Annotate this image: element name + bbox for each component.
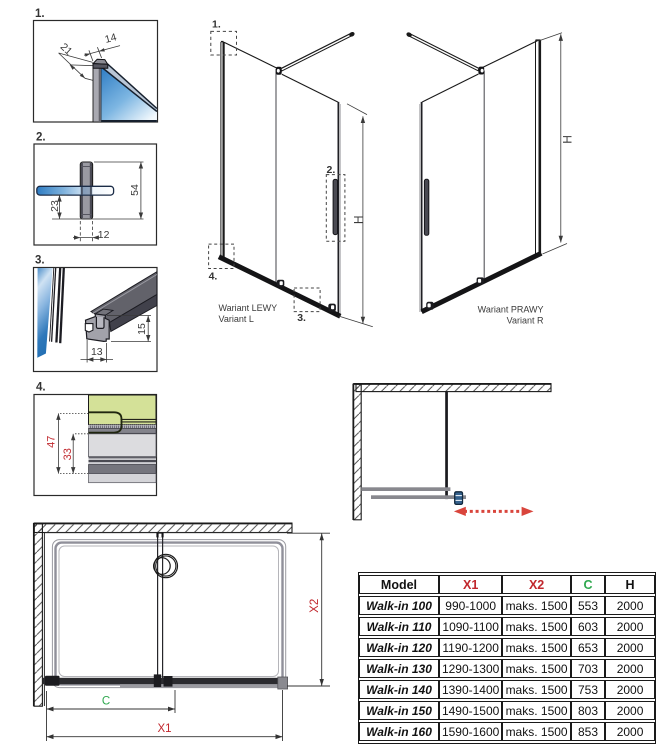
svg-text:2.: 2. [327, 164, 336, 176]
svg-text:X1: X1 [157, 723, 171, 735]
svg-text:23: 23 [49, 200, 61, 212]
svg-text:3.: 3. [297, 312, 306, 324]
svg-text:13: 13 [91, 346, 103, 358]
svg-text:54: 54 [129, 184, 141, 196]
svg-text:1.: 1. [212, 19, 221, 31]
svg-text:4.: 4. [209, 271, 218, 283]
svg-text:47: 47 [45, 436, 57, 448]
svg-text:1.: 1. [35, 8, 45, 20]
svg-text:33: 33 [62, 448, 74, 460]
svg-text:Variant L: Variant L [219, 314, 254, 324]
svg-text:H: H [351, 215, 365, 224]
svg-text:H: H [561, 135, 575, 144]
svg-text:15: 15 [136, 323, 148, 335]
svg-text:C: C [102, 696, 110, 708]
svg-text:2.: 2. [36, 132, 46, 144]
svg-text:Wariant PRAWY: Wariant PRAWY [478, 305, 544, 315]
svg-text:Wariant LEWY: Wariant LEWY [219, 303, 278, 313]
svg-text:4.: 4. [36, 382, 46, 394]
svg-text:X2: X2 [309, 599, 321, 613]
svg-text:3.: 3. [35, 255, 45, 267]
svg-text:Variant R: Variant R [507, 316, 544, 326]
svg-text:12: 12 [98, 229, 110, 241]
